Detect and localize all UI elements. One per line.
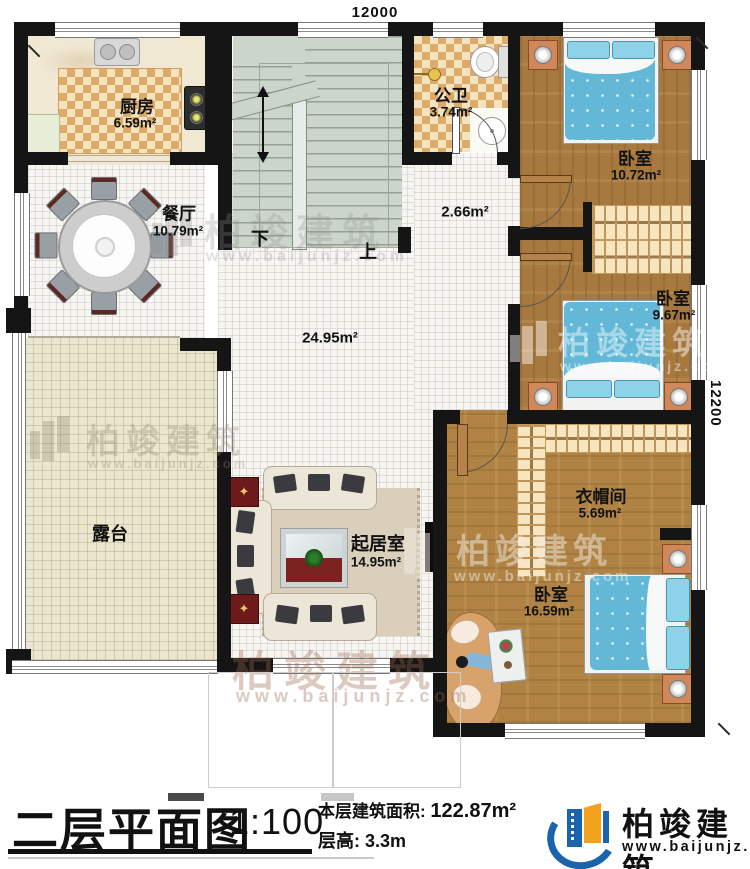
bed2-pillow [566,380,612,398]
wall-corner-block [6,308,31,333]
wall [170,152,218,165]
room-name: 餐厅 [162,205,196,224]
sink-bowl-left [100,44,116,60]
sofa-cushion [341,605,365,625]
stair-stringer [292,100,307,250]
terrace-floor [24,338,218,660]
burner-icon [190,111,203,124]
kitchen-opening-line [68,155,170,156]
room-area-kitchen: 6.59m² [114,116,157,131]
nightstand [662,544,693,574]
bedroom1-door-leaf [520,175,572,183]
bed3-sheet-fold [646,576,664,670]
nightstand [662,674,693,704]
room-area-living: 14.95m² [351,555,401,570]
window [55,22,180,38]
floor-area-label: 本层建筑面积: [318,802,426,821]
floor-area-line: 本层建筑面积: 122.87m² [318,797,516,823]
wardrobe-bedroom2 [592,240,693,274]
terrace-edge-line [28,336,180,338]
room-label-bedroom1: 卧室 [618,145,652,170]
sofa-cushion [308,474,330,491]
person-head [456,656,468,668]
lamp-icon [668,46,686,64]
brand-name: 柏竣建筑 [622,799,750,869]
dimension-right: 12200 [707,380,724,427]
bed2-pillow [614,380,660,398]
stair-down-label: 下 [251,225,269,251]
logo-bar-dots [571,813,574,843]
terrace-railing [12,333,26,649]
lower-floor-outline [208,672,334,788]
room-label-bedroom3: 卧室 [534,581,568,606]
wall [217,338,231,371]
room-area-corridor: 2.66m² [441,204,489,221]
wall [388,22,433,36]
title-underline-thin [8,857,374,859]
room-name: 卧室 [656,290,690,309]
wall [691,380,705,505]
window [14,193,30,296]
dining-chair [91,292,117,315]
window [433,22,483,38]
room-area-hall: 24.95m² [302,330,358,347]
brand-url: www.baijunjz.com [622,839,750,855]
flower-icon [504,661,513,670]
room-area-dining: 10.79m² [153,224,203,239]
lamp-icon [670,388,688,406]
wall [508,304,520,410]
window [691,505,707,590]
dimension-top: 12000 [340,4,410,21]
wall [14,152,68,165]
dimension-tick [718,723,731,736]
floor-height-line: 层高: 3.3m [318,827,406,853]
bed3-pillow [666,578,690,622]
nightstand [528,382,558,412]
bed1-pillow [567,41,610,59]
logo-swoosh [540,797,623,869]
terrace-railing [12,660,218,674]
stair-arrow-up [257,86,269,97]
room-name: 厨房 [120,98,154,117]
side-table-red: ✦ [229,594,259,624]
sofa-cushion [273,474,297,494]
side-table-red: ✦ [229,477,259,507]
corridor-floor [414,153,520,410]
kitchen-sink [94,38,140,66]
room-area-bathroom: 3.74m² [430,105,473,120]
terrace-door-window [217,371,233,452]
lower-floor-outline [332,672,461,788]
toilet-bowl [476,52,494,72]
wall [398,227,411,253]
shower-arm [414,73,429,75]
wall [645,723,691,737]
side-table [487,628,526,683]
room-area-bedroom3: 16.59m² [524,604,574,619]
bed3-pillow [666,626,690,670]
window [505,723,645,739]
brand-logo-icon [545,797,619,861]
room-name: 公卫 [434,87,468,106]
room-area-bedroom1: 10.72m² [611,168,661,183]
room-area-bedroom2: 9.67m² [653,308,696,323]
cloakroom-closet-side [517,424,546,577]
wall [217,452,231,658]
kitchen-fridge [24,114,60,156]
dining-table-center [95,237,115,257]
lamp-icon [534,388,552,406]
logo-bar-blue [567,809,582,847]
wall [507,410,691,424]
cloakroom-closet-top [543,424,693,453]
lamp-icon [534,46,552,64]
wall [218,36,232,250]
room-name: 卧室 [534,586,568,605]
room-name: 起居室 [351,534,405,554]
plant-icon [305,549,323,567]
room-label-bathroom: 公卫 [434,82,468,107]
burner-icon [190,93,203,106]
dining-chair [35,233,58,259]
room-label-bedroom2: 卧室 [656,285,690,310]
room-label-kitchen: 厨房 [120,93,154,118]
room-label-dining: 餐厅 [162,200,196,225]
room-name: 露台 [92,524,128,544]
window [563,22,655,38]
suite-door-leaf [457,424,468,476]
nightstand [528,40,558,70]
sofa-cushion [341,473,365,493]
sofa-cushion [236,510,256,534]
sofa-cushion [275,605,299,625]
room-label-living: 起居室 [351,530,405,556]
wall [402,36,414,153]
window [691,70,707,160]
floor-height-label: 层高: [318,831,360,851]
room-label-cloakroom: 衣帽间 [576,483,627,508]
logo-bar-blue-right [603,811,609,843]
bedroom2-door-leaf [520,253,572,261]
nightstand [662,40,692,70]
floorplan-canvas: ✦ ✦ [0,0,750,869]
wall [508,165,520,178]
wall [14,296,28,308]
wall [217,658,273,672]
wall [583,202,592,272]
sink-bowl-right [119,44,135,60]
logo-bar-orange [584,803,601,843]
floor-height-value: 3.3m [365,831,406,851]
bed1-pillow [612,41,655,59]
wall [14,22,28,193]
title-underline-thick [8,849,312,854]
lamp-icon [669,680,687,698]
room-area-cloakroom: 5.69m² [579,506,622,521]
sofa-top [263,466,377,510]
sofa-cushion [310,605,332,622]
kitchen-opening-line [68,161,170,162]
wall [660,528,691,540]
wall [508,36,520,165]
stair-up-label: 上 [359,238,377,264]
room-name: 卧室 [618,150,652,169]
room-label-terrace: 露台 [92,520,128,546]
wall [691,160,705,285]
coffee-table [280,528,348,588]
wall [205,36,219,165]
room-name: 衣帽间 [576,488,627,507]
toilet [470,46,500,78]
wardrobe-bedroom1 [592,205,693,240]
sofa-bottom [263,593,377,641]
shower-head-icon [428,68,441,81]
floor-area-value: 122.87m² [430,800,516,822]
window [691,285,707,380]
flower-icon [498,638,513,653]
wall [402,152,452,165]
wall [483,22,563,36]
wall [390,658,433,672]
dining-table [58,200,152,294]
sofa-cushion [237,545,254,567]
stair-arrow-line [262,96,264,154]
wall [691,590,705,737]
lamp-icon [669,550,687,568]
wall [180,22,298,36]
nightstand [664,382,693,412]
plan-scale: 1:100 [229,801,324,843]
window [298,22,388,38]
stair-arrow-down [257,152,269,163]
dining-chair [91,177,117,200]
